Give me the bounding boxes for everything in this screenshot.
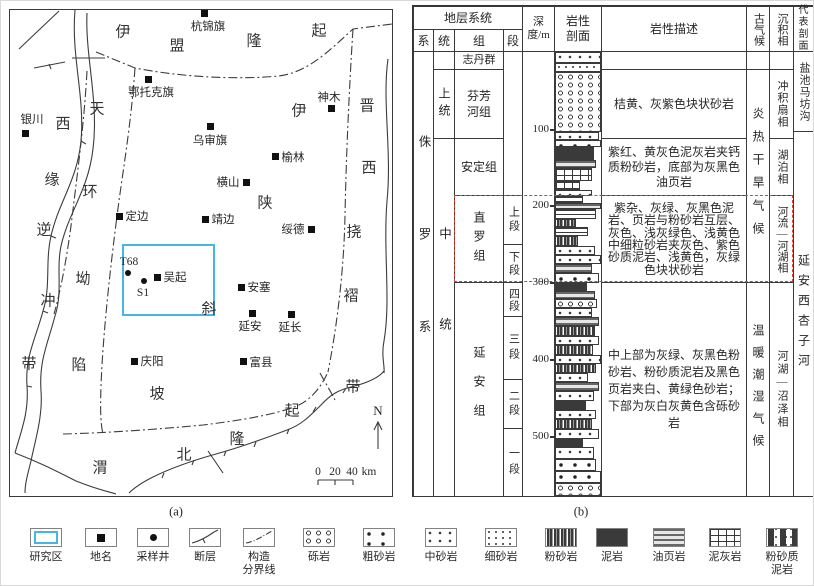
rock-pattern-swatch [364, 529, 394, 546]
legend-item: 中砂岩 [409, 528, 473, 564]
lithology-column [554, 51, 602, 497]
depth-tick-label: 100 [523, 122, 549, 136]
legend-label: 中砂岩 [409, 551, 473, 564]
legend-symbol-coarse-icon [363, 528, 395, 547]
legend-item: 构造 分界线 [227, 528, 291, 576]
cell-member-4: 四段 [503, 282, 523, 317]
lith-block-gravel [555, 72, 601, 132]
legend-symbol-fault-icon [189, 528, 221, 547]
lith-block-fine [555, 63, 601, 72]
legend-label: 砾岩 [287, 551, 351, 564]
lith-block-mid [555, 246, 595, 255]
cell-member-lower: 下段 [503, 244, 523, 283]
rock-pattern-swatch [486, 529, 516, 546]
cell-fm-fenfanghe: 芬芳河组 [454, 69, 504, 139]
lith-block-silt [555, 364, 596, 373]
structural-boundary-lines [54, 24, 392, 434]
th-depth: 深度/m [522, 6, 555, 52]
lith-block-mid [555, 355, 601, 364]
place-square [97, 534, 105, 542]
figure-canvas: 杭锦旗鄂托克旗银川乌审旗神木榆林横山定边靖边绥德吴起安塞延安延长庆阳富县T68S… [0, 0, 814, 586]
legend-symbol-marl-icon [709, 528, 741, 547]
cell-sed-fluvial-lacustrine: 河流—河湖相 [769, 195, 794, 283]
cell-paleo-warm-humid: 温暖潮湿气候 [746, 282, 770, 497]
legend-symbol-gravel-icon [303, 528, 335, 547]
rock-pattern-swatch [426, 529, 456, 546]
legend-label: 泥灰岩 [693, 551, 757, 564]
cell-member-empty [503, 51, 523, 196]
cell-desc-yanan: 中上部为灰绿、灰黑色粉砂岩、粉砂质泥岩及黑色页岩夹白、黄绿色砂岩；下部为灰白灰黄… [601, 282, 747, 497]
cell-sed-empty [769, 51, 794, 70]
th-lithology: 岩性剖面 [554, 6, 602, 52]
cell-fm-anding: 安定组 [454, 138, 504, 196]
lith-block-silt [555, 345, 593, 355]
lith-block-coarse [555, 459, 596, 471]
cell-system-jurassic: 侏罗系 [413, 51, 434, 497]
cell-ref-yanchi: 盐池马坊沟 [793, 51, 814, 132]
lith-block-mid [555, 132, 599, 140]
lith-block-mid [555, 373, 588, 382]
legend-item: 细砂岩 [469, 528, 533, 564]
th-xi: 系 [413, 29, 434, 52]
legend-symbol-siltymud-icon [766, 528, 798, 547]
lith-block-gravel [555, 483, 601, 496]
legend-symbol-silt-icon [545, 528, 577, 547]
lith-block-marl [555, 181, 580, 190]
cell-desc-anding: 紫红、黄灰色泥灰岩夹钙质粉砂岩，底部为灰黑色油页岩 [601, 138, 747, 196]
cell-member-1: 一段 [503, 428, 523, 497]
th-zu: 组 [454, 29, 504, 52]
lith-block-mid [555, 447, 594, 459]
lith-block-mid [555, 255, 601, 264]
depth-tick-label: 500 [523, 429, 549, 443]
lith-block-coarse [555, 273, 599, 283]
th-sed-facies: 沉积相 [769, 6, 794, 52]
cell-fm-yanan: 延安组 [454, 282, 504, 497]
cell-desc-fenfanghe: 桔黄、灰紫色块状砂岩 [601, 69, 747, 139]
cell-series-empty [433, 51, 455, 70]
scale-unit: km [362, 466, 377, 478]
lith-block-dark [555, 160, 596, 168]
panel-a-label: (a) [169, 505, 183, 520]
lith-block-mud [555, 439, 583, 447]
cell-member-3: 三段 [503, 316, 523, 380]
legend-symbol-fine-icon [485, 528, 517, 547]
legend-label: 粗砂岩 [347, 551, 411, 564]
legend-symbol-medium-icon [425, 528, 457, 547]
lith-block-silt [555, 326, 595, 336]
legend-symbol-oilshale-icon [653, 528, 685, 547]
lith-block-mud [555, 147, 594, 160]
lith-block-dark [555, 382, 599, 391]
th-paleoclimate: 古气候 [746, 6, 770, 52]
cell-sed-swamp: 河湖—沼泽相 [769, 282, 794, 497]
lith-block-coarse [555, 140, 601, 147]
th-ref-section: 代表剖面 [793, 6, 814, 52]
th-description: 岩性描述 [601, 6, 747, 52]
scale-bar [318, 480, 353, 485]
th-strat-system: 地层系统 [413, 6, 523, 30]
lith-block-silt [555, 236, 578, 246]
legend-symbol-well-icon [137, 528, 169, 547]
north-label: N [373, 403, 382, 419]
cell-paleo-hot-arid: 炎热干旱气候 [746, 69, 770, 283]
cell-desc-empty [601, 51, 747, 70]
lith-block-mud [555, 283, 587, 291]
legend-label: 油页岩 [637, 551, 701, 564]
cell-ref-xingzihe: 延安西杏子河 [793, 131, 814, 497]
lith-block-mid [555, 391, 594, 401]
legend-item: 粗砂岩 [347, 528, 411, 564]
depth-tick-label: 300 [523, 275, 549, 289]
rock-pattern-swatch [654, 529, 684, 546]
lith-block-dark [555, 317, 599, 326]
rock-pattern-swatch [546, 529, 576, 546]
lith-block-dark [555, 264, 592, 273]
cell-sed-alluvial-fan: 冲积扇相 [769, 69, 794, 139]
lith-block-lines [555, 196, 583, 203]
cell-desc-zhiluo: 紫杂、灰绿、灰黑色泥岩、页岩与粉砂岩互层、灰色、浅灰绿色、浅黄色中细粒砂岩夹灰色… [601, 195, 747, 283]
lith-block-lines [555, 209, 596, 219]
study-area-box [122, 244, 215, 316]
study-area-swatch [34, 531, 58, 544]
panel-b-label: (b) [574, 505, 589, 520]
legend-symbol-mud-icon [596, 528, 628, 547]
legend-item: 油页岩 [637, 528, 701, 564]
rock-pattern-swatch [767, 529, 797, 546]
rock-pattern-swatch [597, 529, 627, 546]
lith-block-marl [555, 168, 592, 181]
lith-block-dark [555, 291, 595, 299]
depth-column: 100200300400500 [522, 51, 555, 497]
cell-member-upper: 上段 [503, 195, 523, 245]
rock-pattern-swatch [710, 529, 740, 546]
legend-label: 细砂岩 [469, 551, 533, 564]
lith-block-mid [555, 52, 601, 63]
th-tong: 统 [433, 29, 455, 52]
lith-block-mid [555, 336, 599, 345]
legend-item: 砾岩 [287, 528, 351, 564]
lith-block-mud [555, 401, 586, 410]
cell-paleo-empty [746, 51, 770, 70]
lith-block-silt [555, 219, 576, 227]
legend-symbol-boundary-icon [243, 528, 275, 547]
legend-symbol-place-icon [85, 528, 117, 547]
legend-label: 泥岩 [580, 551, 644, 564]
lith-block-lines [555, 227, 588, 236]
cell-series-upper: 上统 [433, 69, 455, 139]
legend: 研究区地名采样井断层构造 分界线砾岩粗砂岩中砂岩细砂岩粉砂岩泥岩油页岩泥灰岩粉砂… [1, 528, 814, 586]
north-arrow [374, 422, 382, 449]
legend-item: 泥灰岩 [693, 528, 757, 564]
legend-label: 粉砂质 泥岩 [750, 551, 814, 576]
lith-block-mid [555, 410, 596, 419]
lith-block-silt [555, 419, 592, 429]
lith-block-mid [555, 308, 592, 317]
lith-block-gravel [555, 299, 597, 308]
legend-item: 粉砂质 泥岩 [750, 528, 814, 576]
depth-tick-label: 400 [523, 352, 549, 366]
cell-fm-zhiluo: 直罗组 [454, 195, 504, 283]
cell-series-middle: 中统 [433, 138, 455, 497]
well-circle [150, 534, 157, 541]
legend-label: 构造 分界线 [227, 551, 291, 576]
cell-fm-zhidan: 志丹群 [454, 51, 504, 70]
rock-pattern-swatch [304, 529, 334, 546]
lith-block-coarse [555, 471, 601, 483]
lith-block-mid [555, 429, 599, 439]
cell-sed-lacustrine: 湖泊相 [769, 138, 794, 196]
depth-tick-label: 200 [523, 198, 549, 212]
legend-symbol-study-area-icon [30, 528, 62, 547]
cell-member-2: 二段 [503, 379, 523, 429]
th-duan: 段 [503, 29, 523, 52]
legend-item: 泥岩 [580, 528, 644, 564]
